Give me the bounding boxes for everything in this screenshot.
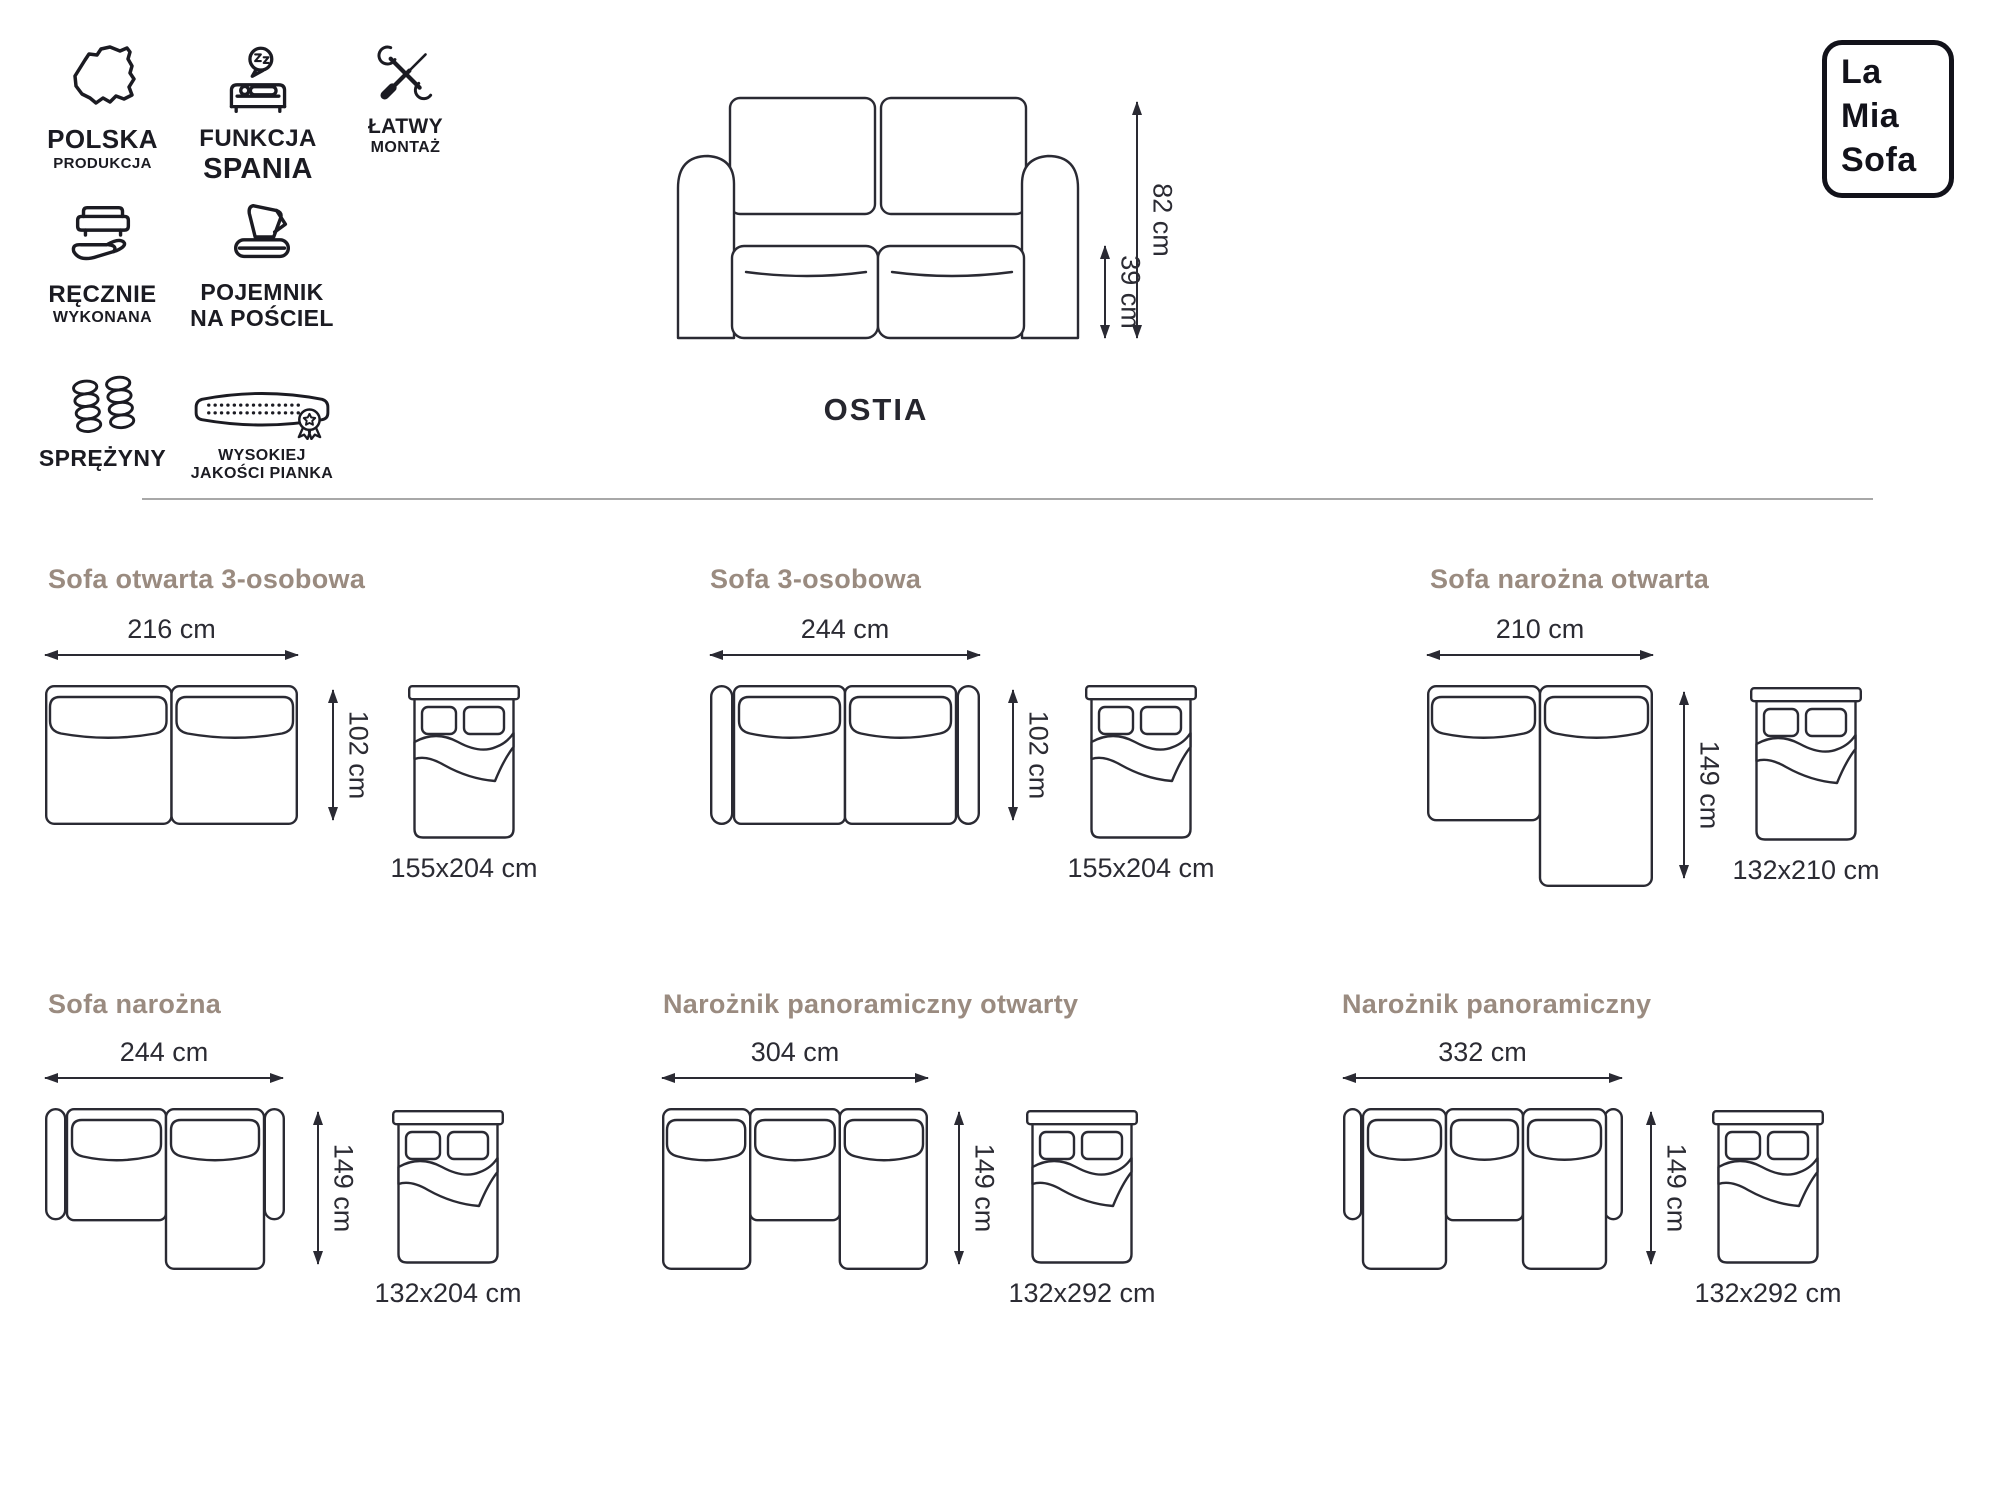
sofa-top-view — [662, 1108, 928, 1270]
seat-height-label: 39 cm — [1115, 255, 1146, 329]
depth-label: 149 cm — [1661, 1144, 1692, 1233]
sofa-top-view — [1427, 685, 1653, 887]
handmade-icon — [64, 196, 142, 274]
width-label: 244 cm — [45, 1037, 283, 1068]
bed-size-label: 155x204 cm — [384, 853, 544, 884]
config-title: Narożnik panoramiczny otwarty — [663, 989, 1078, 1020]
feature-label: RĘCZNIE — [30, 281, 175, 309]
width-dimension: 332 cm — [1343, 1037, 1622, 1079]
bed-size-label: 132x292 cm — [1688, 1278, 1848, 1309]
config-sofa-otwarta-3-osobowa: Sofa otwarta 3-osobowa 216 cm 102 cm 155… — [40, 560, 640, 950]
section-divider — [142, 498, 1873, 500]
width-dimension: 210 cm — [1427, 614, 1653, 656]
poland-map-icon — [63, 38, 143, 118]
config-title: Narożnik panoramiczny — [1342, 989, 1651, 1020]
config-title: Sofa narożna — [48, 989, 221, 1020]
width-arrow — [45, 654, 298, 656]
feature-sublabel: WYKONANA — [30, 309, 175, 327]
bed-icon — [1712, 1110, 1824, 1265]
feature-label: SPRĘŻYNY — [30, 445, 175, 471]
spec-sheet: POLSKA PRODUKCJA FUNKCJA SPANIA — [0, 0, 2000, 1500]
feature-sublabel: JAKOŚCI PIANKA — [172, 465, 352, 483]
bed-size-label: 132x292 cm — [1002, 1278, 1162, 1309]
feature-sublabel: MONTAŻ — [348, 139, 463, 157]
depth-label: 149 cm — [969, 1144, 1000, 1233]
feature-funkcja-spania: FUNKCJA SPANIA — [183, 44, 333, 186]
feature-sprezyny: SPRĘŻYNY — [30, 372, 175, 471]
brand-line: Mia — [1841, 94, 1949, 138]
width-dimension: 304 cm — [662, 1037, 928, 1079]
feature-label: POLSKA — [30, 125, 175, 155]
sofa-top-view — [710, 685, 980, 825]
config-sofa-narozna: Sofa narożna 244 cm 149 cm 132x204 cm — [40, 985, 640, 1375]
feature-polska-produkcja: POLSKA PRODUKCJA — [30, 38, 175, 172]
config-sofa-narozna-otwarta: Sofa narożna otwarta 210 cm 149 cm 132x2… — [1425, 560, 2000, 950]
width-label: 332 cm — [1343, 1037, 1622, 1068]
depth-arrow — [1012, 690, 1014, 820]
depth-label: 102 cm — [343, 711, 374, 800]
width-arrow — [1343, 1077, 1622, 1079]
bed-size-label: 132x204 cm — [368, 1278, 528, 1309]
sofa-top-view — [1343, 1108, 1623, 1270]
config-naroznik-panoramiczny-otwarty: Narożnik panoramiczny otwarty 304 cm 149… — [658, 985, 1298, 1375]
total-height-label: 82 cm — [1147, 183, 1178, 257]
depth-arrow — [1650, 1112, 1652, 1264]
width-label: 216 cm — [45, 614, 298, 645]
feature-sublabel: PRODUKCJA — [30, 155, 175, 172]
bed-size-label: 132x210 cm — [1726, 855, 1886, 886]
width-dimension: 216 cm — [45, 614, 298, 656]
feature-sublabel: NA POŚCIEL — [182, 305, 342, 331]
sofa-top-view — [45, 685, 298, 825]
sofa-front-view — [676, 96, 1080, 340]
depth-arrow — [958, 1112, 960, 1264]
feature-pojemnik-na-posciel: POJEMNIK NA POŚCIEL — [182, 194, 342, 332]
feature-label: POJEMNIK — [182, 279, 342, 305]
width-arrow — [710, 654, 980, 656]
bed-icon — [1750, 687, 1862, 842]
feature-wysokiej-jakosci-pianka: WYSOKIEJ JAKOŚCI PIANKA — [172, 378, 352, 484]
depth-label: 149 cm — [328, 1144, 359, 1233]
seat-height-arrow — [1104, 246, 1106, 338]
feature-label: FUNKCJA — [183, 125, 333, 153]
feature-sublabel: SPANIA — [183, 153, 333, 186]
width-label: 304 cm — [662, 1037, 928, 1068]
bedding-storage-icon — [223, 194, 301, 272]
config-title: Sofa narożna otwarta — [1430, 564, 1709, 595]
depth-arrow — [317, 1112, 319, 1264]
config-title: Sofa 3-osobowa — [710, 564, 921, 595]
brand-line: Sofa — [1841, 138, 1949, 182]
depth-arrow — [1683, 692, 1685, 878]
depth-label: 102 cm — [1023, 711, 1054, 800]
sofa-top-view — [45, 1108, 285, 1270]
feature-label: WYSOKIEJ — [172, 447, 352, 465]
depth-arrow — [332, 690, 334, 820]
depth-label: 149 cm — [1694, 741, 1725, 830]
config-title: Sofa otwarta 3-osobowa — [48, 564, 365, 595]
foam-icon — [192, 378, 332, 440]
springs-icon — [64, 372, 142, 438]
sleep-function-icon — [220, 44, 296, 118]
width-dimension: 244 cm — [45, 1037, 283, 1079]
width-label: 244 cm — [710, 614, 980, 645]
bed-icon — [1085, 685, 1197, 840]
width-arrow — [1427, 654, 1653, 656]
brand-line: La — [1841, 50, 1949, 94]
brand-logo: La Mia Sofa — [1822, 40, 1954, 198]
config-sofa-3-osobowa: Sofa 3-osobowa 244 cm 102 cm 155x204 cm — [705, 560, 1305, 950]
feature-latwy-montaz: ŁATWY MONTAŻ — [348, 40, 463, 158]
bed-icon — [392, 1110, 504, 1265]
feature-recznie-wykonana: RĘCZNIE WYKONANA — [30, 196, 175, 327]
product-name: OSTIA — [756, 392, 996, 428]
bed-icon — [1026, 1110, 1138, 1265]
width-arrow — [45, 1077, 283, 1079]
feature-label: ŁATWY — [348, 115, 463, 139]
bed-icon — [408, 685, 520, 840]
width-dimension: 244 cm — [710, 614, 980, 656]
width-label: 210 cm — [1427, 614, 1653, 645]
bed-size-label: 155x204 cm — [1061, 853, 1221, 884]
config-naroznik-panoramiczny: Narożnik panoramiczny 332 cm 149 cm 132 — [1338, 985, 1998, 1375]
width-arrow — [662, 1077, 928, 1079]
easy-assembly-icon — [372, 40, 440, 108]
